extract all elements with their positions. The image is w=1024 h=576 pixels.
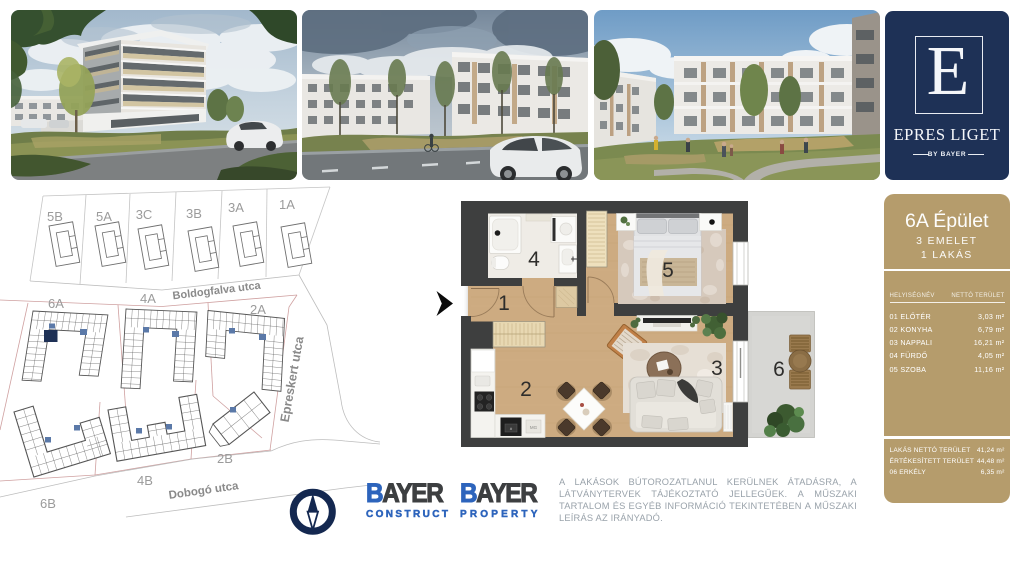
svg-text:2B: 2B [217, 451, 233, 466]
svg-text:1: 1 [498, 292, 510, 315]
svg-text:4A: 4A [140, 291, 156, 306]
svg-text:1A: 1A [279, 197, 295, 212]
svg-text:3: 3 [711, 357, 723, 380]
svg-text:Dobogó utca: Dobogó utca [168, 480, 240, 502]
svg-text:6A: 6A [48, 296, 64, 311]
svg-text:3A: 3A [228, 200, 244, 215]
svg-text:4B: 4B [137, 473, 153, 488]
svg-text:4: 4 [528, 248, 540, 271]
svg-text:6B: 6B [40, 496, 56, 511]
svg-text:5A: 5A [96, 209, 112, 224]
svg-text:6: 6 [773, 358, 785, 381]
svg-text:5: 5 [662, 259, 674, 282]
svg-text:3C: 3C [136, 207, 153, 222]
svg-text:2: 2 [520, 378, 532, 401]
svg-text:MG: MG [530, 425, 538, 430]
svg-text:2A: 2A [250, 302, 266, 317]
svg-text:3B: 3B [186, 206, 202, 221]
svg-text:5B: 5B [47, 209, 63, 224]
